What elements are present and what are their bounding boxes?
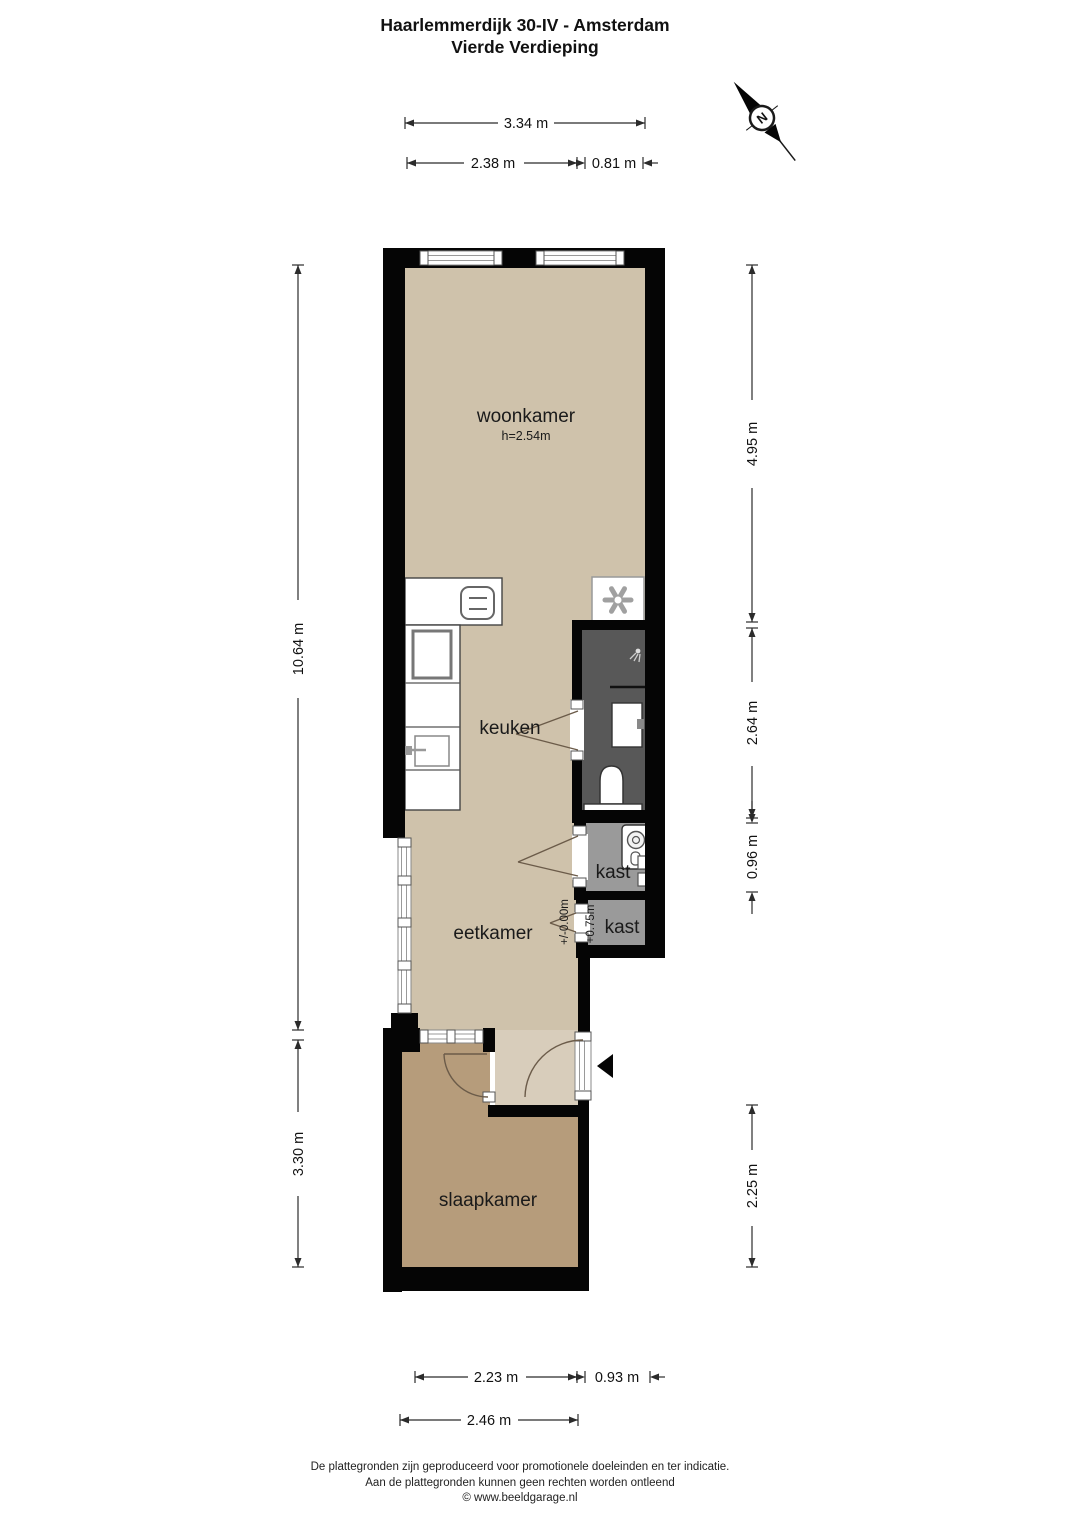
- room-label-eetkamer: eetkamer: [453, 923, 533, 944]
- plan-footer: De plattegronden zijn geproduceerd voor …: [0, 1460, 1040, 1507]
- footer-line1: De plattegronden zijn geproduceerd voor …: [0, 1460, 1040, 1476]
- room-label-slaapkamer: slaapkamer: [439, 1190, 538, 1211]
- facade-window: [536, 251, 624, 265]
- floor-level-raised: +0.75m: [585, 905, 597, 944]
- dim-top-right: 0.81 m: [570, 156, 658, 172]
- dim-right-middle: 2.64 m: [745, 628, 761, 818]
- balcony-window: [398, 838, 411, 1013]
- bedroom-window: [420, 1030, 483, 1043]
- fridge-icon: [413, 631, 451, 678]
- svg-text:10.64 m: 10.64 m: [291, 623, 307, 675]
- svg-text:2.64 m: 2.64 m: [745, 701, 761, 745]
- footer-line2: Aan de plattegronden kunnen geen rechten…: [0, 1476, 1040, 1492]
- dim-right-upper: 4.95 m: [745, 265, 761, 622]
- svg-text:0.96 m: 0.96 m: [745, 835, 761, 879]
- facade-window: [420, 251, 502, 265]
- room-label-woonkamer: woonkamer: [476, 406, 576, 427]
- dim-bottom-total: 2.46 m: [400, 1413, 578, 1429]
- floorplan-svg: woonkamer h=2.54m keuken eetkamer kast k…: [0, 0, 1080, 1527]
- dim-bottom-small: 0.93 m: [570, 1370, 665, 1386]
- svg-text:0.81 m: 0.81 m: [592, 156, 636, 172]
- room-label-keuken: keuken: [479, 718, 540, 739]
- svg-text:3.30 m: 3.30 m: [291, 1132, 307, 1176]
- room-label-kast-boven: kast: [596, 862, 632, 883]
- dim-right-lower: 2.25 m: [745, 1105, 761, 1267]
- ceiling-height-label: h=2.54m: [502, 429, 551, 443]
- toilet-icon: [600, 766, 623, 804]
- dim-left-upper: 10.64 m: [291, 265, 307, 1030]
- entrance-arrow-icon: [597, 1054, 613, 1078]
- svg-text:2.23 m: 2.23 m: [474, 1370, 518, 1386]
- footer-line3: © www.beeldgarage.nl: [0, 1491, 1040, 1507]
- ventilation-fan-icon: [592, 577, 644, 623]
- svg-text:2.25 m: 2.25 m: [745, 1164, 761, 1208]
- svg-text:4.95 m: 4.95 m: [745, 422, 761, 466]
- floor-level-zero: +/-0.00m: [559, 899, 571, 945]
- svg-text:3.34 m: 3.34 m: [504, 116, 548, 132]
- hall-floor: [495, 1030, 578, 1105]
- entrance-door-glazing: [575, 1032, 591, 1100]
- dim-bottom-left: 2.23 m: [415, 1370, 577, 1386]
- washbasin-icon: [612, 703, 644, 747]
- svg-text:2.38 m: 2.38 m: [471, 156, 515, 172]
- north-arrow-icon: N: [718, 69, 811, 172]
- floorplan-page: Haarlemmerdijk 30-IV - Amsterdam Vierde …: [0, 0, 1080, 1527]
- svg-text:2.46 m: 2.46 m: [467, 1413, 511, 1429]
- dim-top-left: 2.38 m: [407, 156, 577, 172]
- svg-text:0.93 m: 0.93 m: [595, 1370, 639, 1386]
- dim-top-total: 3.34 m: [405, 116, 645, 132]
- room-label-kast-onder: kast: [605, 917, 641, 938]
- stove-icon: [461, 587, 494, 619]
- dim-left-lower: 3.30 m: [291, 1040, 307, 1267]
